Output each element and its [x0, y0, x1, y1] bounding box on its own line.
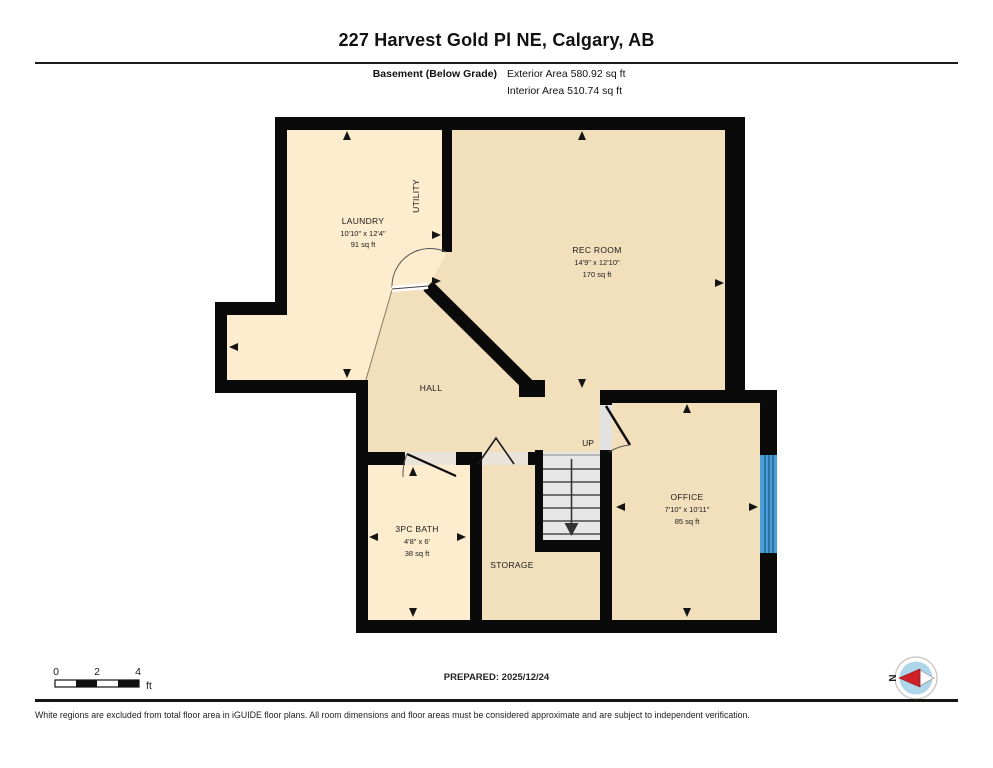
window	[760, 455, 777, 553]
room-label-hall: HALL	[420, 383, 442, 393]
room-dims-bath: 4'8" x 6'	[404, 537, 431, 546]
disclaimer-text: White regions are excluded from total fl…	[35, 710, 965, 720]
room-label-storage: STORAGE	[490, 560, 534, 570]
room-dims-office: 7'10" x 10'11"	[665, 505, 710, 514]
stairs	[543, 452, 600, 540]
room-fills	[227, 130, 762, 620]
room-area-rec-room: 170 sq ft	[583, 270, 613, 279]
room-label-rec-room: REC ROOM	[572, 245, 621, 255]
room-dims-laundry: 10'10" x 12'4"	[340, 229, 386, 238]
room-label-office: OFFICE	[671, 492, 704, 502]
room-area-laundry: 91 sq ft	[351, 240, 377, 249]
bath-fill	[368, 452, 470, 620]
footer-divider	[35, 699, 958, 702]
room-label-laundry: LAUNDRY	[342, 216, 385, 226]
room-label-utility: UTILITY	[411, 179, 421, 213]
prepared-date: PREPARED: 2025/12/24	[0, 672, 993, 683]
room-area-bath: 38 sq ft	[405, 549, 431, 558]
room-area-office: 85 sq ft	[675, 517, 701, 526]
stairs-up-label: UP	[582, 438, 594, 448]
floor-plan-drawing: LAUNDRY 10'10" x 12'4" 91 sq ft UTILITY …	[0, 0, 993, 768]
room-dims-rec-room: 14'9" x 12'10"	[574, 258, 620, 267]
floor-plan-page: 227 Harvest Gold Pl NE, Calgary, AB Base…	[0, 0, 993, 768]
room-label-bath: 3PC BATH	[395, 524, 438, 534]
